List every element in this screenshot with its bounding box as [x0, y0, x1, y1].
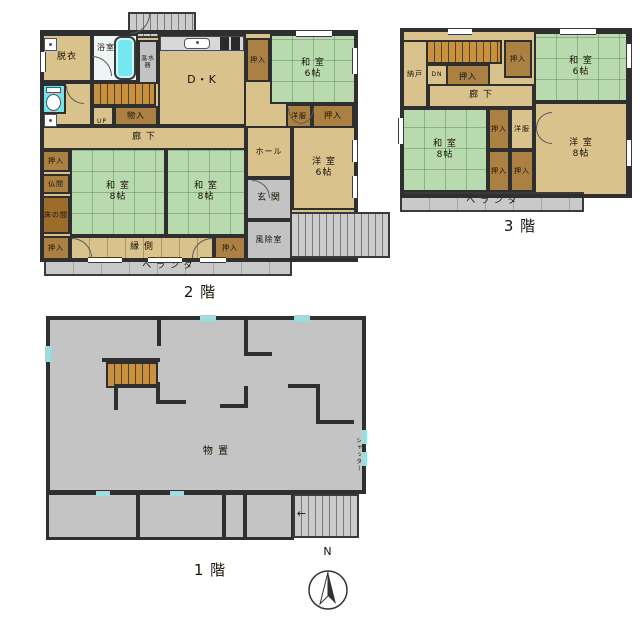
- room-washitsu8-left-label: 和 室 8帖: [72, 150, 164, 234]
- room-washitsu8-3f: 和 室 8帖: [402, 108, 488, 192]
- washbasin-icon-2: [44, 114, 57, 127]
- closet-oshiire-yoshitsu-label: 押入: [314, 106, 352, 126]
- window-yoshitsu6-right1: [352, 140, 358, 162]
- kitchen-sink-icon: [184, 38, 210, 49]
- room-monooki-band: [46, 492, 246, 540]
- wall-6: [158, 400, 186, 404]
- closet-oshiire-mid3-label: 押入: [512, 152, 532, 190]
- closet-yofuku-3f: 洋服: [510, 108, 534, 150]
- wall-3: [114, 384, 160, 388]
- room-washitsu6-3f: 和 室 6帖: [534, 32, 628, 102]
- wall-2: [102, 358, 160, 362]
- room-washitsu6-3f-label: 和 室 6帖: [536, 34, 626, 100]
- room-rouka-3f-label: 廊 下: [430, 86, 532, 106]
- dn-label: DN: [426, 70, 448, 80]
- wall-8: [244, 352, 272, 356]
- room-washitsu8-right-label: 和 室 8帖: [168, 150, 244, 234]
- room-rouka-2f: 廊 下: [42, 126, 246, 150]
- window-washitsu6-top: [296, 30, 332, 37]
- closet-oshiire-top-label: 押入: [506, 42, 530, 76]
- window-engawa-1: [88, 257, 122, 263]
- closet-oshiire-mid3: 押入: [510, 150, 534, 192]
- door-tick-top1: [200, 315, 216, 321]
- window-3f-top1: [448, 28, 472, 35]
- room-mononyu-label: 物入: [116, 108, 156, 124]
- room-engawa-label: 縁 側: [72, 238, 212, 258]
- dn-label-label: DN: [426, 70, 448, 80]
- closet-oshiire-l1: 押入: [42, 150, 70, 172]
- wall-1: [157, 316, 161, 346]
- room-washitsu6-2f-label: 和 室 6帖: [272, 36, 354, 102]
- room-rouka-2f-label: 廊 下: [44, 128, 244, 148]
- room-washitsu8-3f-label: 和 室 8帖: [404, 110, 486, 190]
- wall-4: [114, 384, 118, 410]
- door-tick-right2: [361, 452, 367, 466]
- room-rouka-3f: 廊 下: [428, 84, 534, 108]
- floorplan-canvas: 脱衣浴室温水器物入UPD・K押入和 室 6帖洋服押入廊 下ホール洋 室 6帖押入…: [0, 0, 640, 634]
- floor2-label: 2 階: [130, 280, 270, 304]
- window-3f-left: [398, 118, 404, 144]
- room-monooki-hall: [244, 492, 294, 540]
- room-hall-label: ホール: [248, 128, 290, 176]
- closet-oshiire-top: 押入: [504, 40, 532, 78]
- room-fujoshitsu: 風除室: [246, 220, 292, 260]
- door-tick-left: [45, 346, 51, 362]
- washbasin-icon-1: [44, 38, 57, 51]
- floor1-label-label: 1 階: [145, 558, 275, 582]
- room-washitsu8-left: 和 室 8帖: [70, 148, 166, 236]
- closet-oshiire-dk: 押入: [246, 38, 270, 82]
- room-onsuiki-label: 温水器: [140, 42, 156, 82]
- window-datsui-left: [40, 52, 46, 72]
- monooki-label: 物 置: [186, 444, 246, 460]
- door-tick-top2: [294, 315, 310, 321]
- room-yoshitsu6-2f-label: 洋 室 6帖: [294, 128, 354, 208]
- room-tokonoma: 床の間: [42, 196, 70, 234]
- wall-band-div2: [222, 492, 226, 540]
- stairs-up-2f: [92, 82, 156, 106]
- window-3f-right2: [626, 140, 632, 166]
- closet-oshiire-mid2-label: 押入: [490, 152, 508, 190]
- room-mononyu: 物入: [114, 106, 158, 126]
- wall-10: [220, 404, 248, 408]
- closet-oshiire-dk-label: 押入: [248, 40, 268, 80]
- wall-13: [316, 420, 354, 424]
- stove-icon: [220, 37, 240, 50]
- room-butsuma: 仏間: [42, 174, 70, 194]
- floor3-label: 3 階: [450, 214, 590, 238]
- closet-oshiire-yoshitsu: 押入: [312, 104, 354, 128]
- door-tick-band2: [170, 491, 184, 496]
- window-yoshitsu6-right2: [352, 176, 358, 198]
- closet-oshiire-l2-label: 押入: [44, 238, 68, 258]
- stairs-arrow-left: ←: [294, 506, 310, 522]
- door-tick-band1: [96, 491, 110, 496]
- closet-oshiire-l1-label: 押入: [44, 152, 68, 170]
- window-3f-right1: [626, 44, 632, 68]
- room-hall: ホール: [246, 126, 292, 178]
- bathtub-icon: [114, 36, 136, 80]
- room-nando-label: 納戸: [404, 42, 426, 106]
- room-nando: 納戸: [402, 40, 428, 108]
- closet-oshiire-l2: 押入: [42, 236, 70, 260]
- wall-7: [244, 316, 248, 356]
- monooki-label-label: 物 置: [186, 444, 246, 460]
- closet-oshiire-mid1-label: 押入: [490, 110, 508, 148]
- room-fujoshitsu-label: 風除室: [248, 222, 290, 258]
- floor2-label-label: 2 階: [130, 280, 270, 304]
- exterior-stairs-right: [290, 212, 390, 258]
- room-washitsu8-right: 和 室 8帖: [166, 148, 246, 236]
- window-3f-top2: [560, 28, 596, 35]
- wall-band-div1: [136, 492, 140, 540]
- filler-tan-1: [246, 82, 272, 126]
- closet-oshiire-engawa-label: 押入: [216, 238, 244, 258]
- wall-12: [316, 384, 320, 424]
- room-tokonoma-label: 床の間: [44, 198, 68, 232]
- compass-label: N: [300, 545, 356, 617]
- compass: N: [300, 545, 356, 617]
- closet-oshiire-mid2: 押入: [488, 150, 510, 192]
- floor1-label: 1 階: [145, 558, 275, 582]
- window-engawa-2: [148, 257, 182, 263]
- room-butsuma-label: 仏間: [44, 176, 68, 192]
- window-washitsu6-right: [352, 48, 358, 74]
- toilet-bowl-icon: [46, 94, 61, 111]
- floor3-label-label: 3 階: [450, 214, 590, 238]
- stairs-dn-3f: [426, 40, 502, 64]
- door-tick-right1: [361, 430, 367, 444]
- room-onsuiki: 温水器: [138, 40, 158, 84]
- closet-yofuku-3f-label: 洋服: [512, 110, 532, 148]
- toilet-tank-icon: [46, 87, 61, 93]
- room-yoshitsu6-2f: 洋 室 6帖: [292, 126, 356, 210]
- closet-oshiire-mid1: 押入: [488, 108, 510, 150]
- veranda-3f: ベ ラ ン ダ: [400, 192, 584, 212]
- veranda-3f-label: ベ ラ ン ダ: [402, 194, 582, 210]
- room-washitsu6-2f: 和 室 6帖: [270, 34, 356, 104]
- stairs-arrow-left-label: ←: [294, 506, 310, 522]
